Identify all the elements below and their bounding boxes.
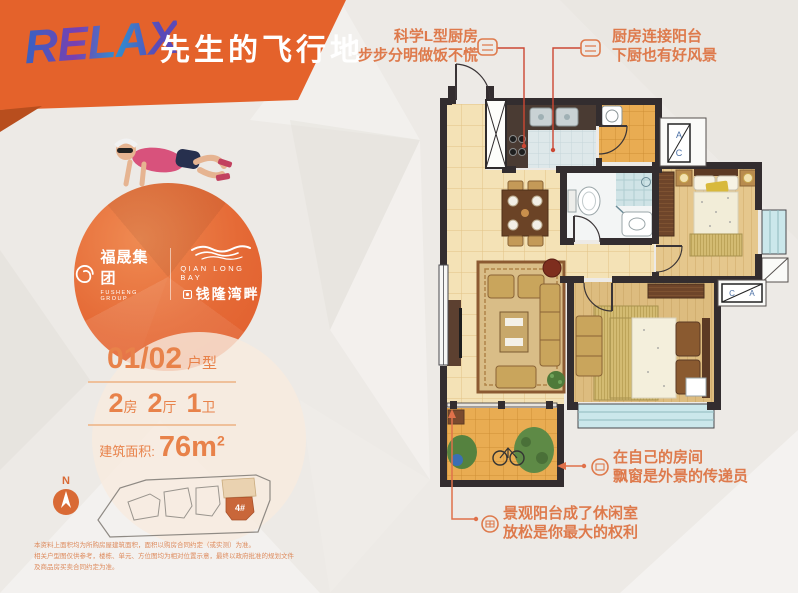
lamp: [744, 174, 753, 183]
site-building-outline: [164, 488, 192, 518]
bed-throw: [610, 318, 632, 398]
balcony-callout-icon-glyph: [486, 521, 494, 527]
burner: [510, 136, 517, 143]
site-building-4-label: 4#: [235, 503, 245, 513]
nightstand: [686, 378, 706, 396]
side-table: [543, 259, 561, 277]
master-bay-window: [762, 210, 786, 254]
site-building-highlight-wing: [222, 478, 256, 498]
plant: [514, 427, 554, 473]
ac-panel-bedroom: C A: [718, 280, 766, 306]
callout-balcony: 景观阳台成了休闲室 放松是你最大的权利: [503, 505, 638, 543]
compass-n-label: N: [62, 475, 70, 487]
poster-page: RELAX 先生的飞行地 福晟集团 FUSHEN: [0, 0, 798, 593]
vanity: [622, 212, 652, 236]
tv-cabinet: [648, 284, 704, 298]
callout-bedroom: 在自己的房间 飘窗是外景的传递员: [613, 449, 748, 487]
bed-blanket: [694, 192, 738, 234]
disclaimer: 本资料上面积均为所购房屋建筑面积，面积以购房合同约定（或实测）为准。 相关户型图…: [34, 540, 294, 573]
bedroom-callout-icon: [592, 459, 608, 475]
site-building-outline: [196, 486, 220, 516]
callout-balcony-line2: 放松是你最大的权利: [503, 524, 638, 543]
callout-kitchen-balcony: 厨房连接阳台 下厨也有好风景: [612, 28, 717, 66]
compass: N: [46, 472, 86, 520]
dining-chair: [528, 236, 543, 246]
flue-column: [486, 100, 506, 168]
callout-bedroom-line1: 在自己的房间: [613, 449, 748, 468]
lamp: [680, 174, 689, 183]
disclaimer-line1: 本资料上面积均为所购房屋建筑面积，面积以购房合同约定（或实测）为准。: [34, 540, 294, 551]
dining-set: [502, 181, 548, 246]
flower-pot: [451, 454, 463, 466]
toilet: [578, 187, 600, 215]
callout-balcony-line1: 景观阳台成了休闲室: [503, 505, 638, 524]
bedroom-bay-window: [578, 404, 714, 428]
sofa: [540, 284, 560, 366]
tv: [459, 308, 462, 358]
burner: [510, 149, 517, 156]
washing-machine: [602, 106, 622, 126]
bench-sofa: [576, 316, 602, 376]
dining-chair: [508, 236, 523, 246]
bed-throw: [690, 234, 742, 256]
callout-kitchen-line2: 步步分明做饭不慌: [352, 47, 478, 66]
ac-letter: A: [749, 289, 755, 298]
loveseat: [496, 366, 536, 388]
callout-kitchen-balcony-line1: 厨房连接阳台: [612, 28, 717, 47]
wardrobe: [658, 172, 674, 236]
kitchen-balcony-callout-icon: [581, 40, 600, 56]
tv-cabinet: [447, 300, 461, 366]
callout-bedroom-line2: 飘窗是外景的传递员: [613, 468, 748, 487]
pillow: [676, 322, 700, 356]
armchair: [488, 275, 514, 298]
ac-letter: A: [676, 130, 682, 140]
site-building-outline: [128, 494, 160, 520]
toilet-tank: [568, 190, 576, 212]
headboard: [694, 168, 738, 176]
site-plan: 4#: [88, 472, 278, 546]
bedroom-callout-icon-glyph: [596, 464, 604, 470]
ac-panel-kitchen: A C: [660, 118, 706, 166]
disclaimer-line2: 相关户型图仅供参考，楼栋、单元、方位图均为相对位置示意，最终以政府批准的规划文件…: [34, 551, 294, 573]
kitchen-callout-icon: [478, 39, 497, 55]
callout-kitchen: 科学L型厨房 步步分明做饭不慌: [352, 28, 478, 66]
entry-floor: [446, 104, 486, 170]
bed-blanket: [632, 318, 676, 398]
potted-plant: [547, 371, 565, 389]
entry-door-arc: [456, 64, 490, 99]
corridor-floor: [562, 244, 654, 278]
burner: [519, 149, 526, 156]
callout-kitchen-balcony-line2: 下厨也有好风景: [612, 47, 717, 66]
ac-letter: C: [729, 289, 735, 298]
ac-letter: C: [676, 148, 683, 158]
callout-kitchen-line1: 科学L型厨房: [352, 28, 478, 47]
